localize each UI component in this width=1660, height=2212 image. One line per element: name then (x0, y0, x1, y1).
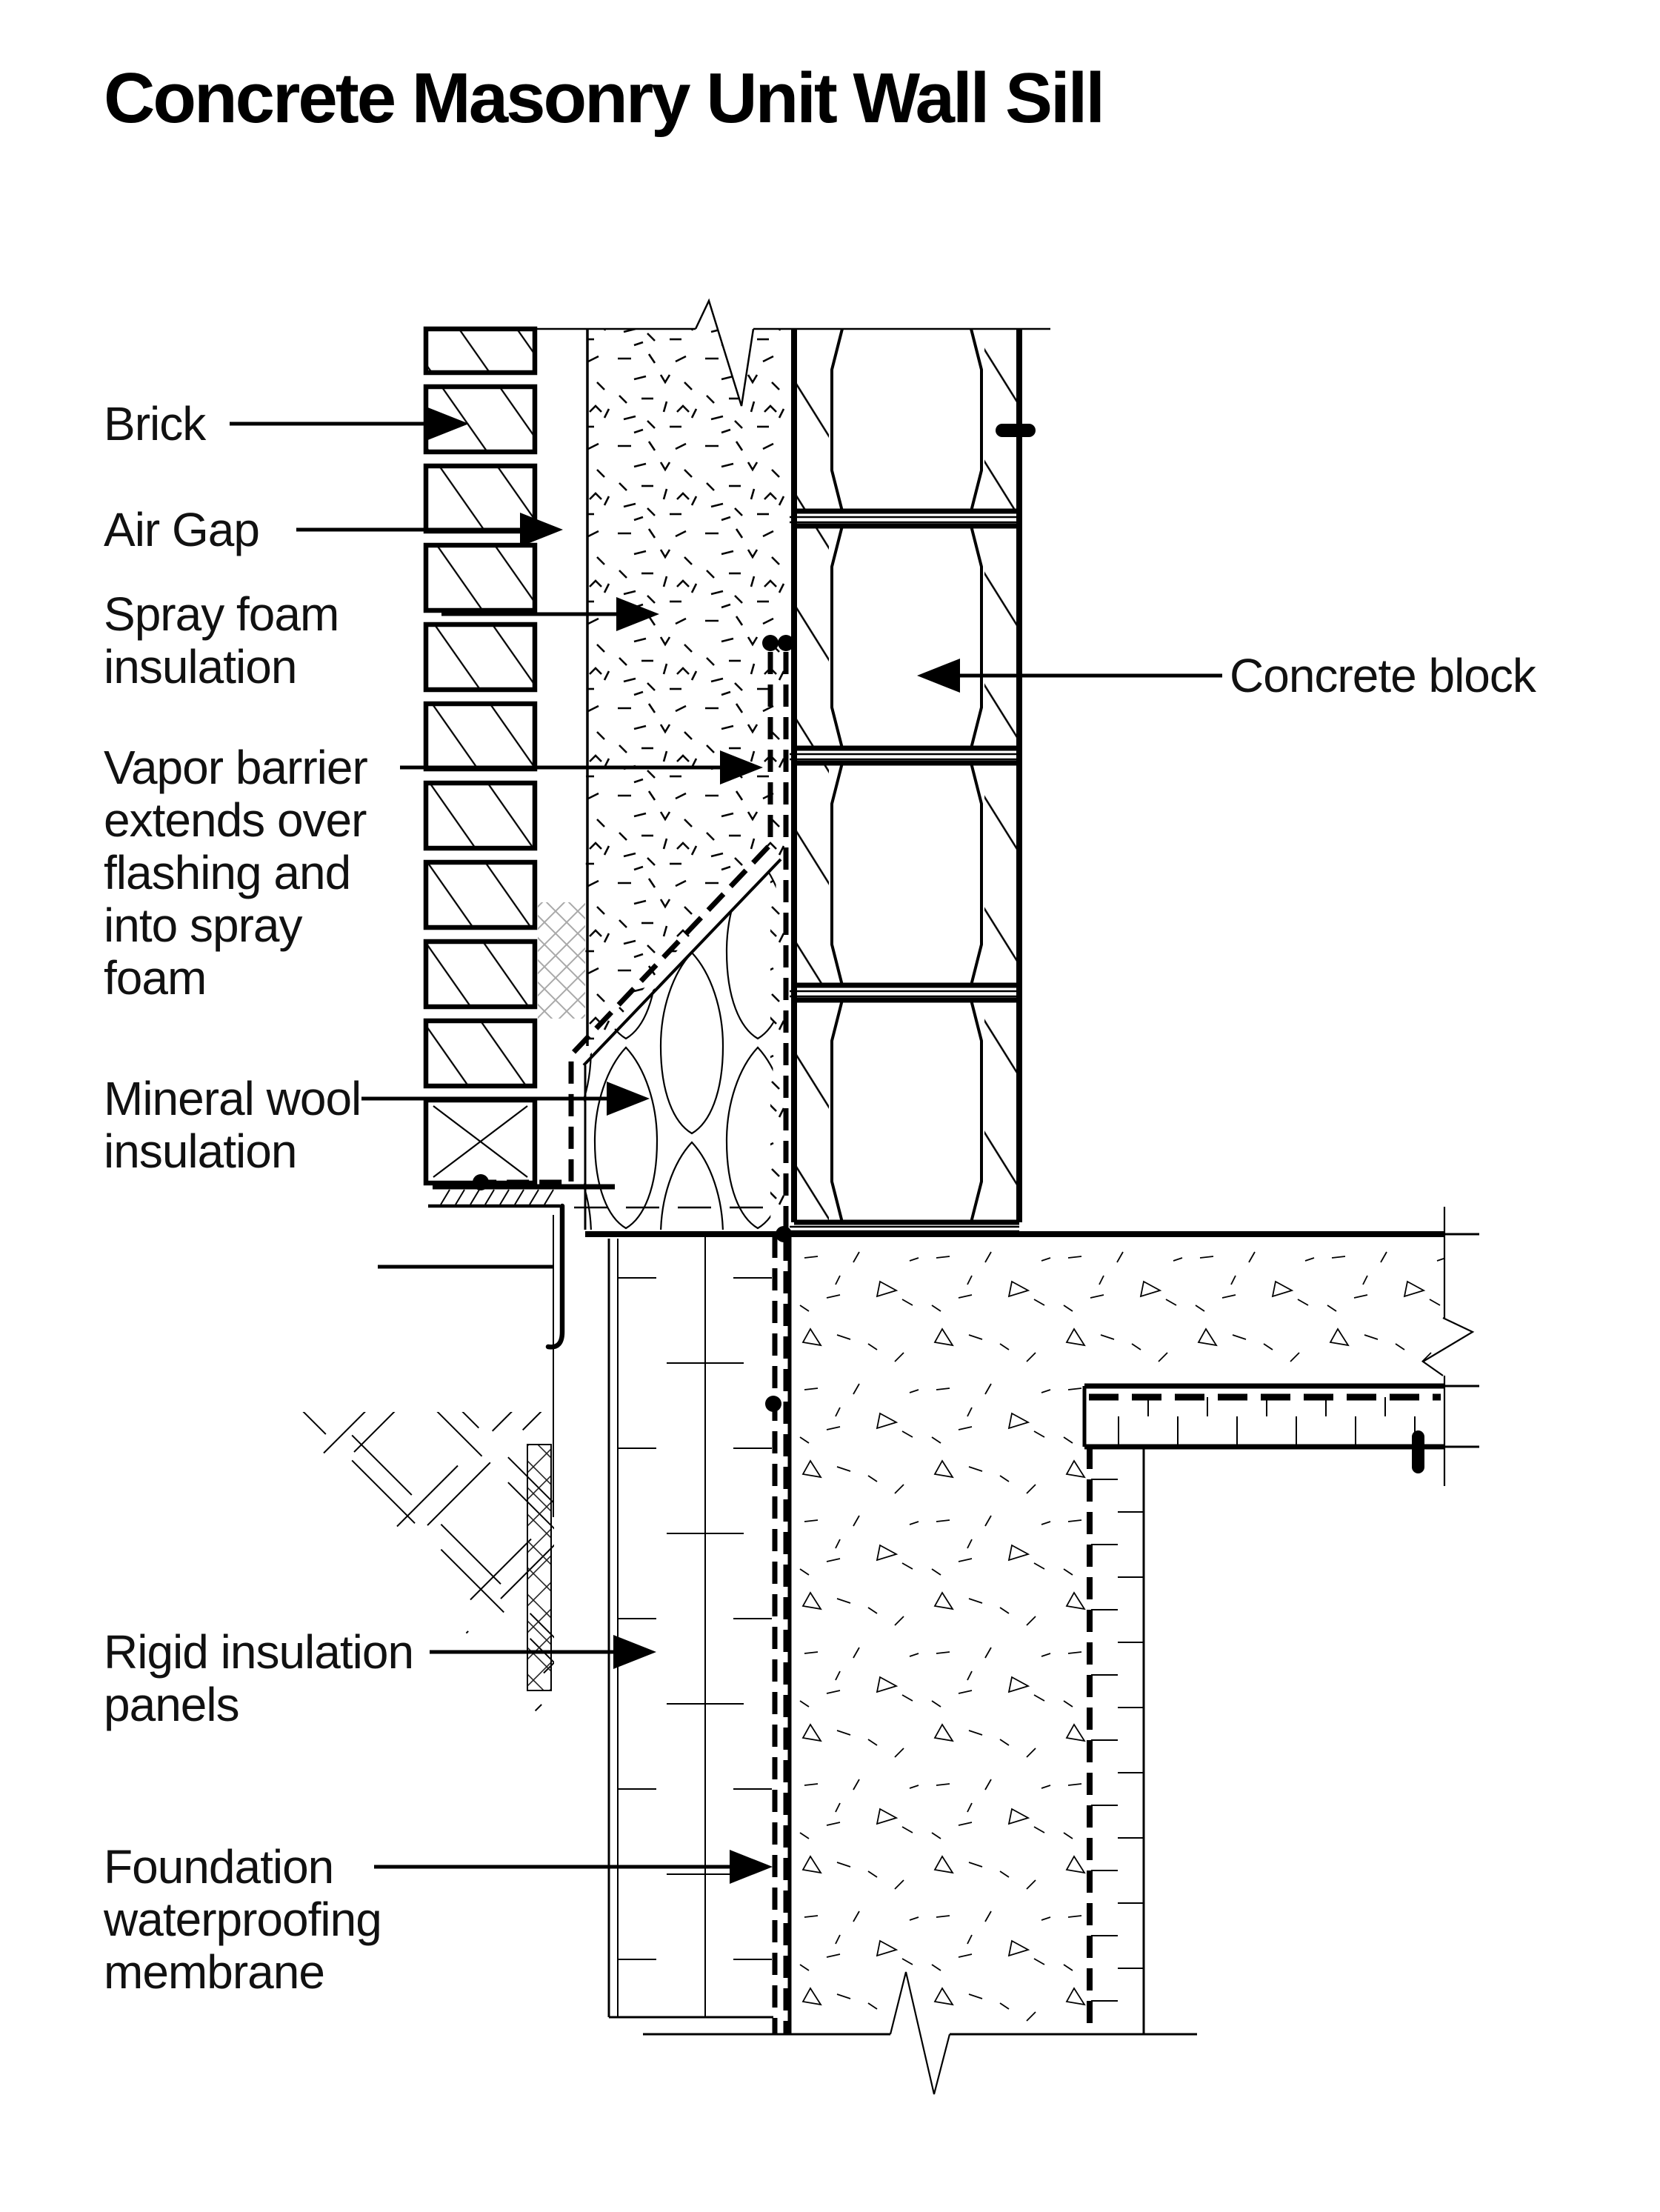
label-spray-foam: Spray foam insulation (104, 588, 339, 693)
label-brick: Brick (104, 398, 205, 450)
protection-ticks (1091, 1479, 1144, 2001)
section-marker-slab (1412, 1430, 1424, 1473)
label-vapor-barrier: Vapor barrier extends over flashing and … (104, 742, 367, 1005)
label-mineral-wool: Mineral wool insulation (104, 1073, 361, 1178)
section-marker-top (996, 424, 1036, 437)
cmu-wall (790, 329, 1036, 1231)
label-foundation-membrane: Foundation waterproofing membrane (104, 1841, 381, 1999)
concrete-foundation-fill (790, 1234, 1444, 2034)
brick-column (426, 329, 535, 1086)
panel-joint-ticks (618, 1278, 772, 1959)
cut-brick (426, 1100, 535, 1183)
label-concrete-block: Concrete block (1230, 650, 1536, 702)
rigid-insulation (609, 1234, 773, 2017)
page-title: Concrete Masonry Unit Wall Sill (104, 58, 1103, 139)
label-air-gap: Air Gap (104, 504, 259, 556)
label-rigid-insulation: Rigid insulation panels (104, 1626, 413, 1731)
mortar-net-mesh (538, 902, 585, 1019)
drawing-page: Concrete Masonry Unit Wall Sill Brick Ai… (0, 0, 1660, 2212)
